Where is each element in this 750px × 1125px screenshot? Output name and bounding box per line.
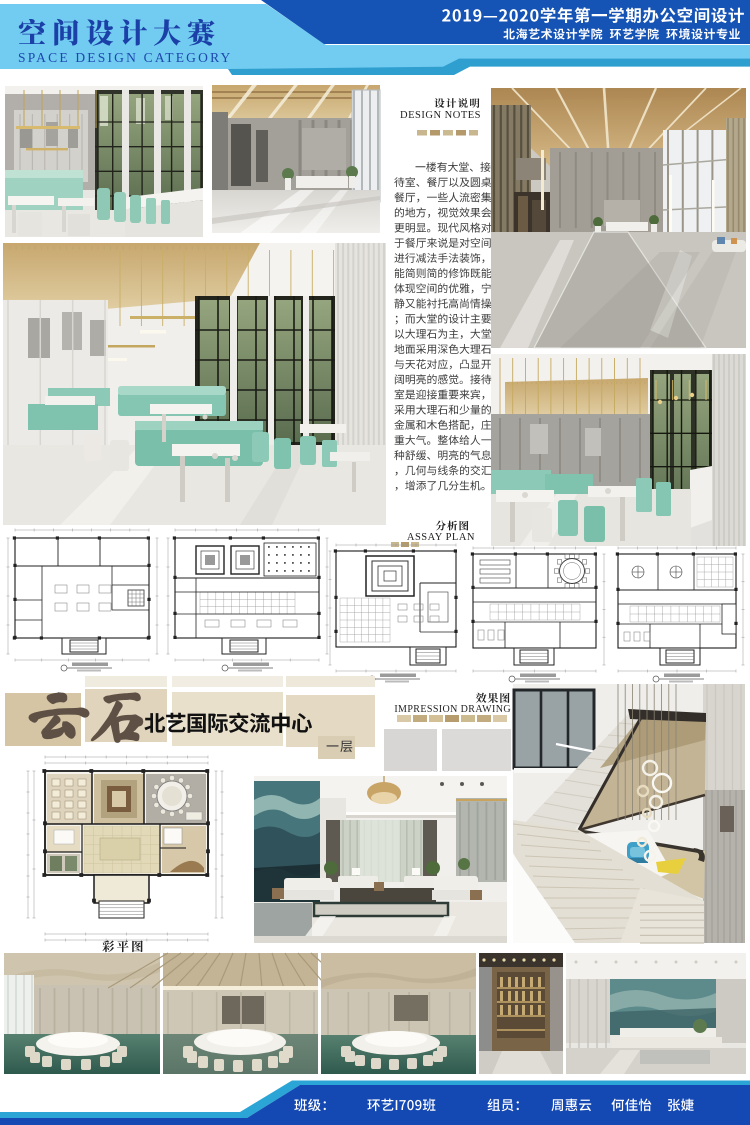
svg-text:DESIGN NOTES: DESIGN NOTES xyxy=(400,110,481,121)
svg-text:ASSAY PLAN: ASSAY PLAN xyxy=(407,532,475,543)
svg-text:IMPRESSION DRAWING: IMPRESSION DRAWING xyxy=(394,704,511,715)
svg-text:SPACE DESIGN CATEGORY: SPACE DESIGN CATEGORY xyxy=(18,50,232,65)
